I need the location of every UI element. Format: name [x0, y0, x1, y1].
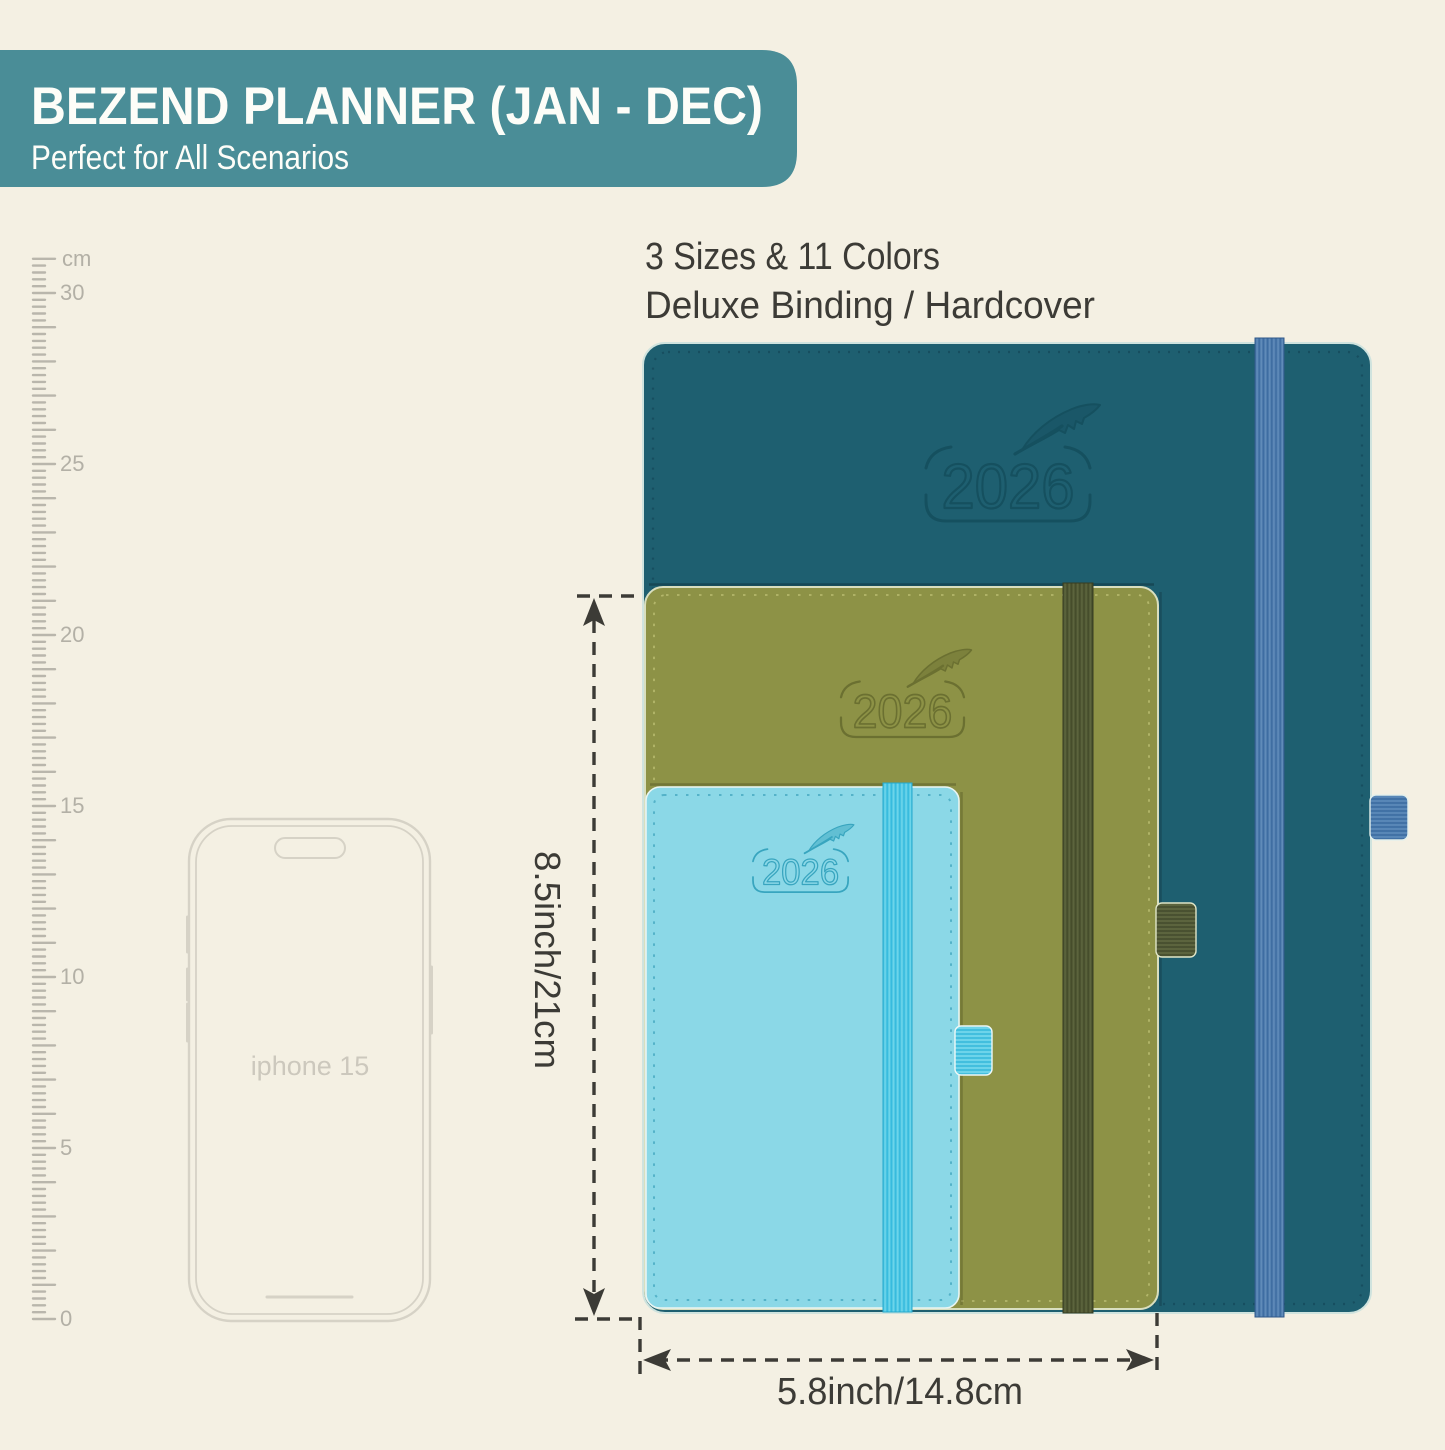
- svg-text:3 Sizes & 11 Colors: 3 Sizes & 11 Colors: [645, 236, 940, 278]
- svg-text:cm: cm: [62, 246, 91, 271]
- svg-text:5: 5: [60, 1135, 72, 1160]
- svg-text:Perfect for All Scenarios: Perfect for All Scenarios: [31, 139, 349, 177]
- svg-text:BEZEND PLANNER (JAN - DEC): BEZEND PLANNER (JAN - DEC): [31, 77, 763, 136]
- svg-text:iphone 15: iphone 15: [251, 1051, 370, 1081]
- svg-text:15: 15: [60, 793, 84, 818]
- svg-text:8.5inch/21cm: 8.5inch/21cm: [527, 851, 568, 1069]
- svg-text:Deluxe Binding / Hardcover: Deluxe Binding / Hardcover: [645, 285, 1095, 327]
- svg-text:25: 25: [60, 451, 84, 476]
- svg-text:30: 30: [60, 280, 84, 305]
- svg-text:20: 20: [60, 622, 84, 647]
- svg-text:0: 0: [60, 1306, 72, 1331]
- svg-text:10: 10: [60, 964, 84, 989]
- svg-text:5.8inch/14.8cm: 5.8inch/14.8cm: [777, 1371, 1023, 1413]
